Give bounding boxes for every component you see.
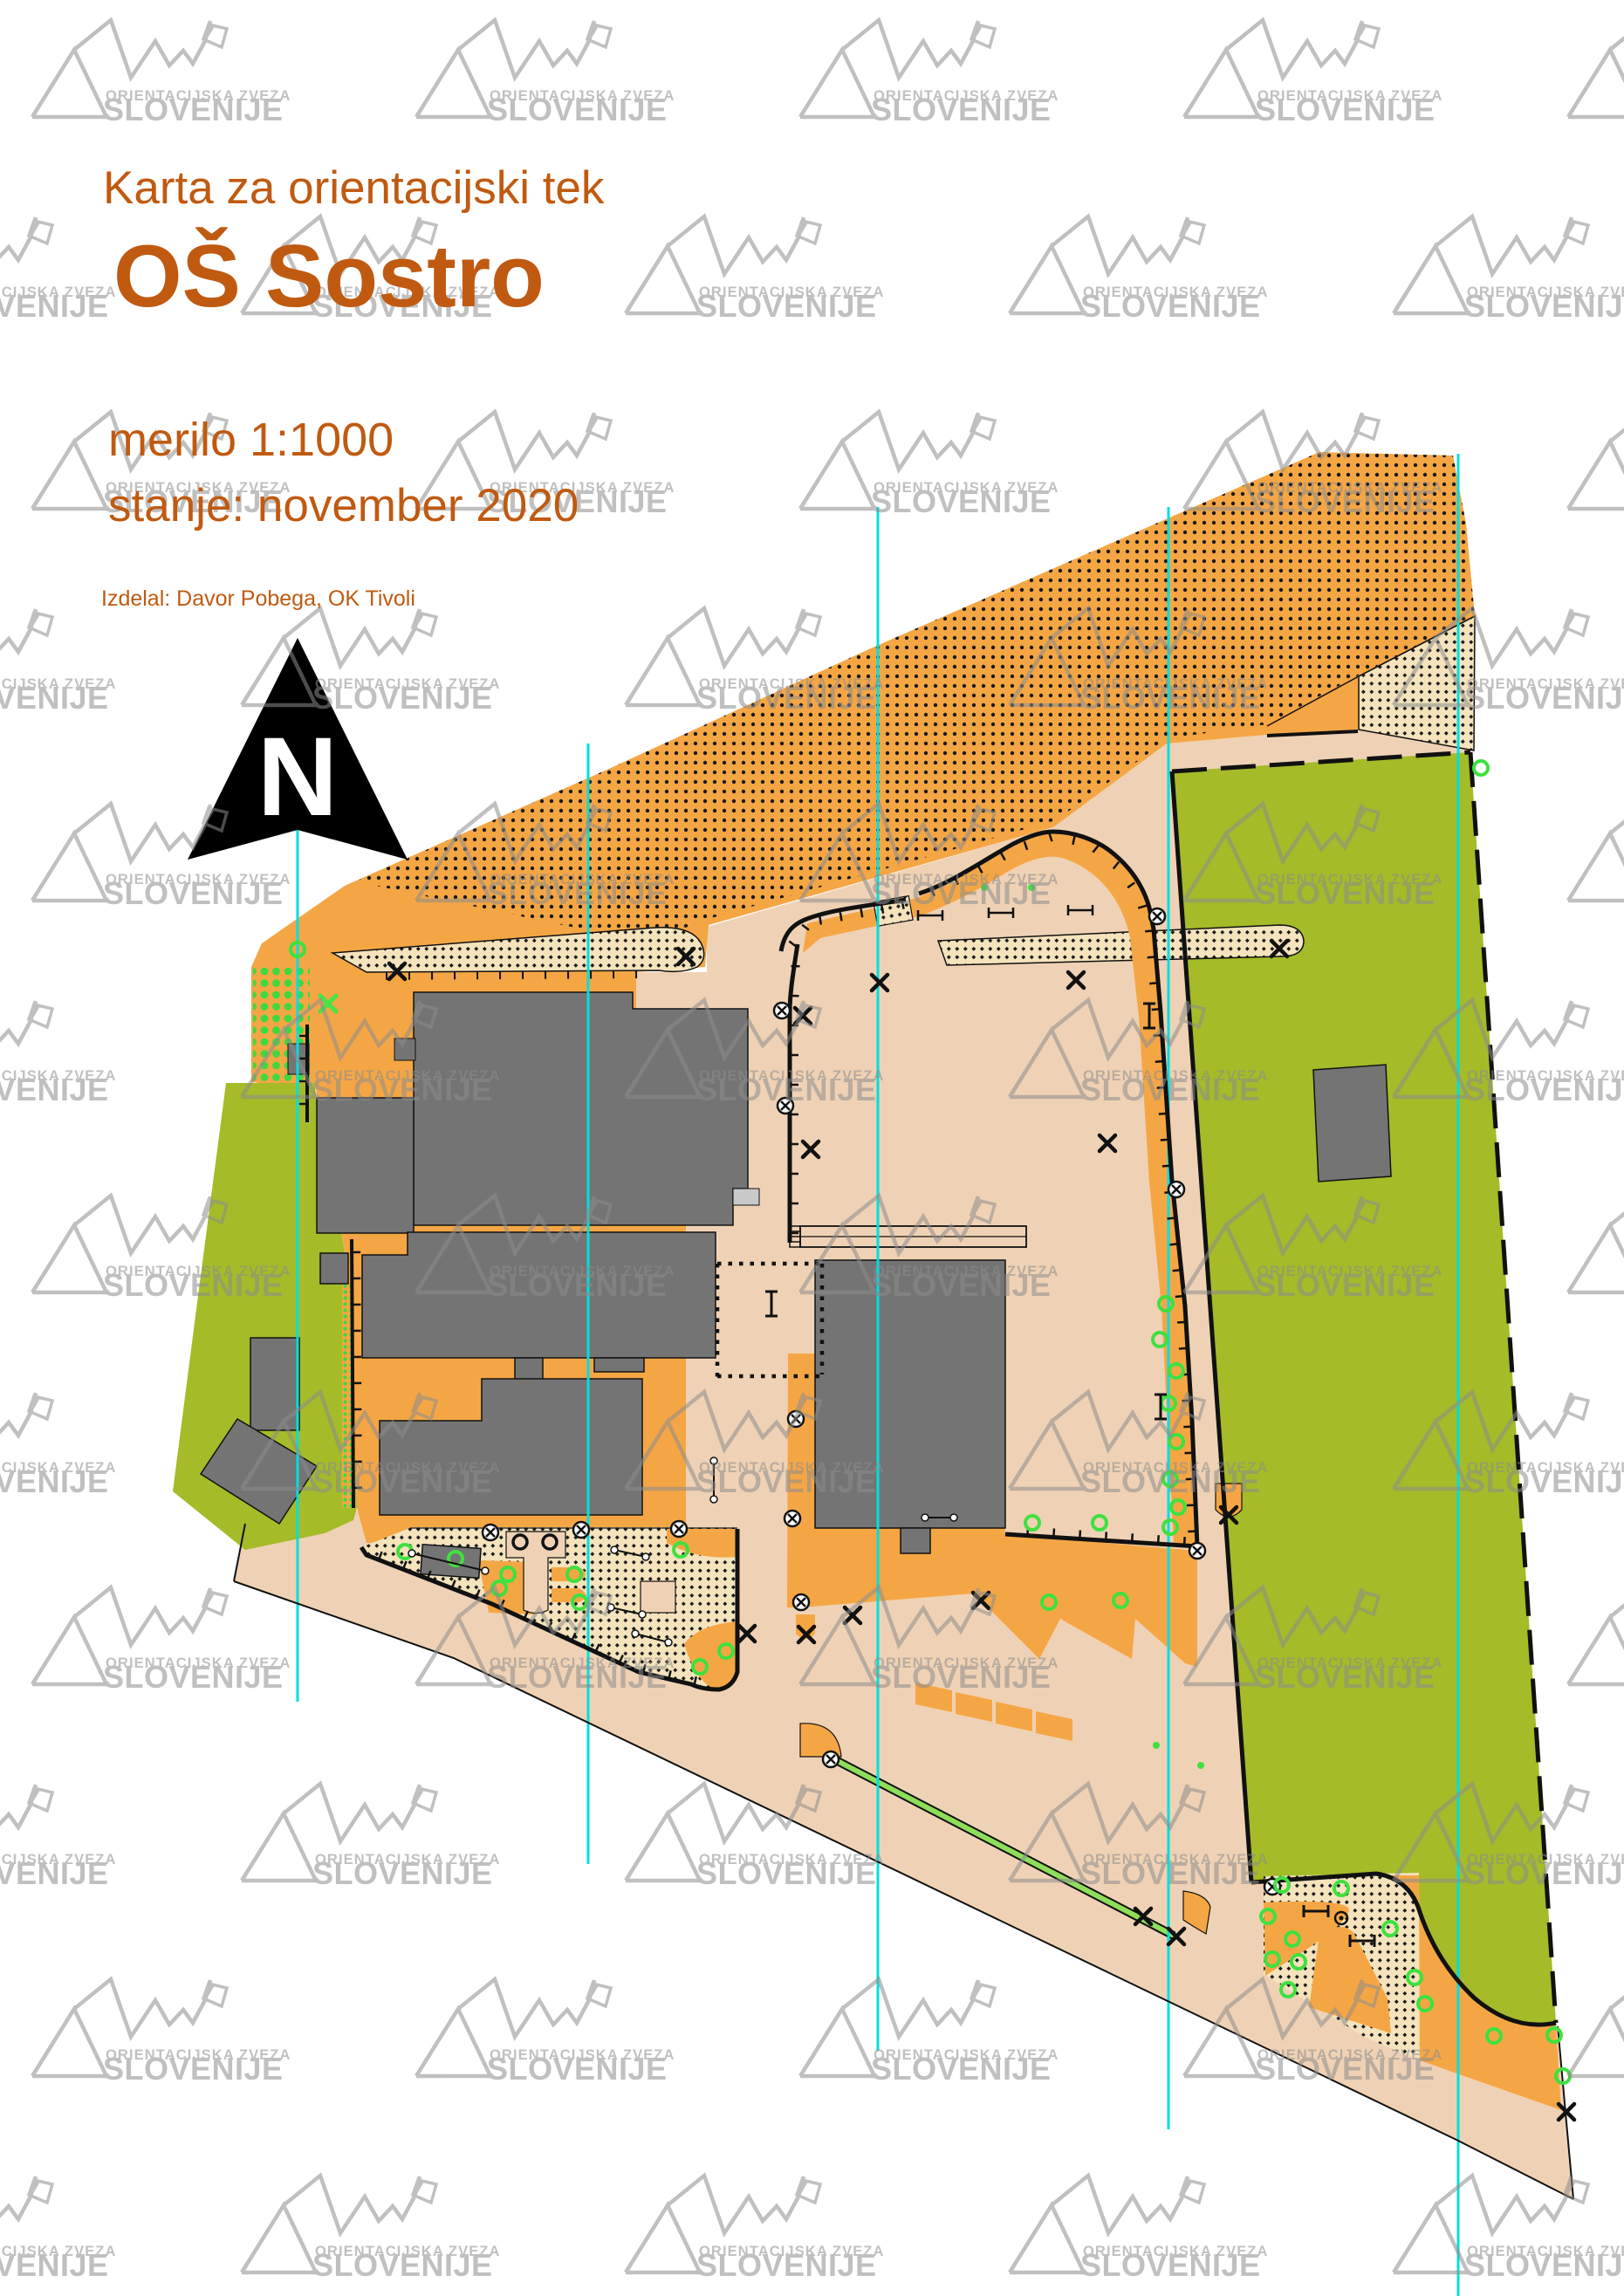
svg-text:Izdelal: Davor Pobega, OK Tivo: Izdelal: Davor Pobega, OK Tivoli (101, 586, 415, 611)
svg-text:Karta za orientacijski tek: Karta za orientacijski tek (103, 162, 605, 214)
svg-text:N: N (257, 715, 338, 840)
svg-text:stanje: november 2020: stanje: november 2020 (108, 480, 579, 531)
svg-text:merilo 1:1000: merilo 1:1000 (108, 414, 394, 466)
svg-text:OŠ Sostro: OŠ Sostro (113, 228, 545, 326)
